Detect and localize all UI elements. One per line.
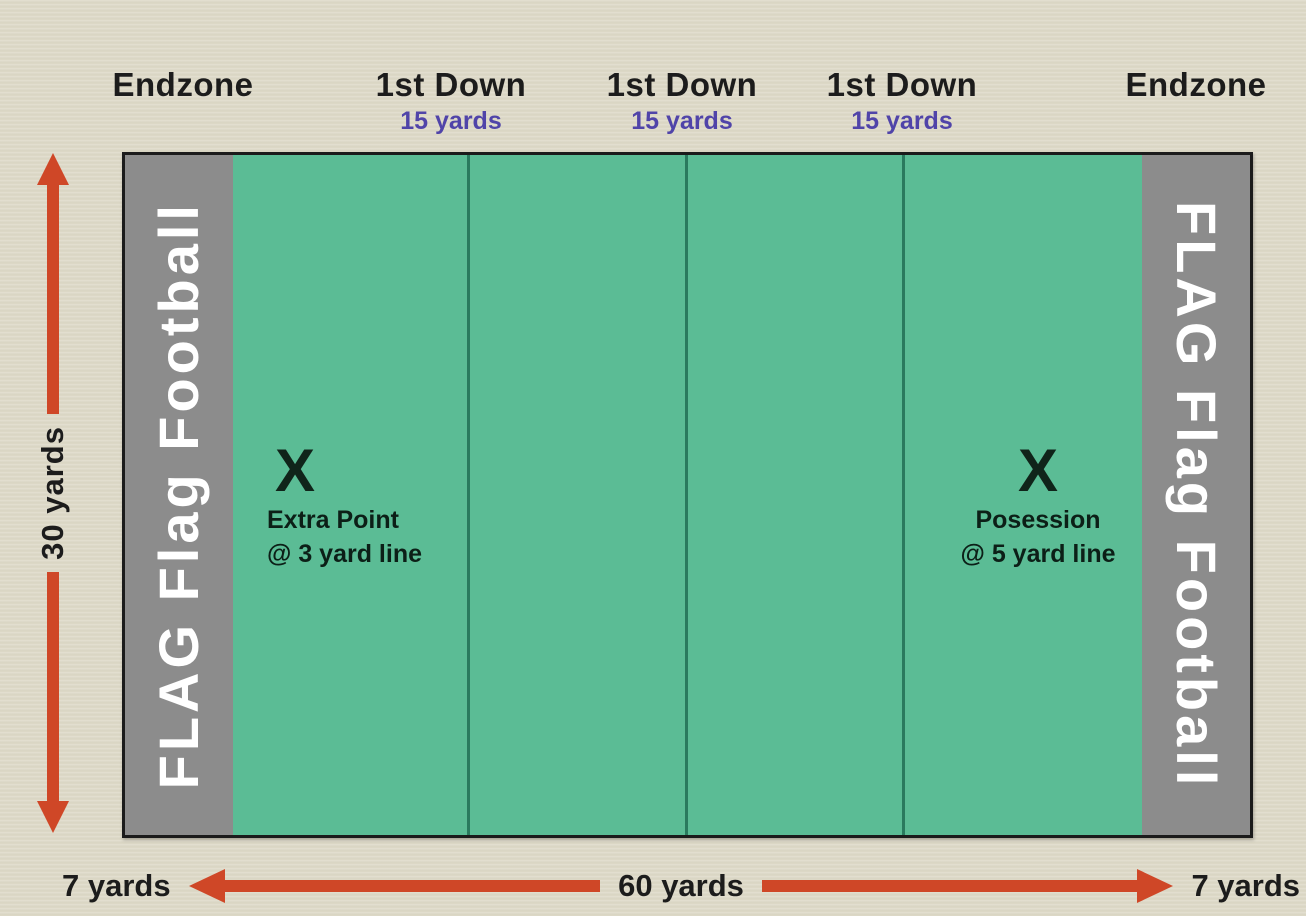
possession-marker: X Posession @ 5 yard line [936,443,1140,571]
extra-point-label: Extra Point [267,503,399,537]
arrowhead-right [1137,869,1173,903]
extra-point-marker: X Extra Point @ 3 yard line [267,443,422,571]
endzone-width-label-right: 7 yards [1191,868,1300,904]
height-dimension-arrow: 30 yards [36,153,70,833]
field: FLAG Flag Football X Extra Point @ 3 yar… [122,152,1253,838]
endzone-width-label-left: 7 yards [62,868,171,904]
width-dimension-row: 7 yards 60 yards 7 yards [62,862,1300,910]
endzone-text-left: FLAG Flag Football [151,201,207,789]
first-down-line-2 [685,155,688,835]
field-height-label: 30 yards [35,426,71,560]
arrow-shaft [47,572,59,801]
possession-label: Posession [975,503,1100,537]
fifteen-yards-label: 15 yards [851,107,952,136]
arrowhead-left [189,869,225,903]
first-down-label: 1st Down [376,66,527,104]
arrow-shaft [762,880,1138,892]
fifteen-yards-label: 15 yards [400,107,501,136]
arrow-left-icon [189,869,601,903]
arrow-down-icon [37,801,69,833]
arrow-shaft [47,185,59,414]
endzone-label-left: Endzone [113,66,254,104]
x-mark: X [1018,443,1058,499]
arrow-up-icon [37,153,69,185]
endzone-label-right: Endzone [1126,66,1267,104]
first-down-label-group-2: 1st Down 15 yards [607,66,758,136]
first-down-label: 1st Down [827,66,978,104]
fifteen-yards-label: 15 yards [631,107,732,136]
endzone-right: FLAG Flag Football [1142,155,1250,835]
playfield: X Extra Point @ 3 yard line X Posession … [233,155,1142,835]
endzone-text-right: FLAG Flag Football [1168,201,1224,789]
first-down-label-group-1: 1st Down 15 yards [376,66,527,136]
first-down-line-1 [467,155,470,835]
arrow-shaft [225,880,601,892]
extra-point-yardline-label: @ 3 yard line [267,537,422,571]
endzone-left: FLAG Flag Football [125,155,233,835]
arrow-right-icon [762,869,1174,903]
first-down-line-3 [902,155,905,835]
possession-yardline-label: @ 5 yard line [961,537,1116,571]
flag-football-field-diagram: Endzone 1st Down 15 yards 1st Down 15 ya… [0,0,1306,916]
x-mark: X [275,443,315,499]
playfield-width-label: 60 yards [618,868,744,904]
first-down-label-group-3: 1st Down 15 yards [827,66,978,136]
first-down-label: 1st Down [607,66,758,104]
